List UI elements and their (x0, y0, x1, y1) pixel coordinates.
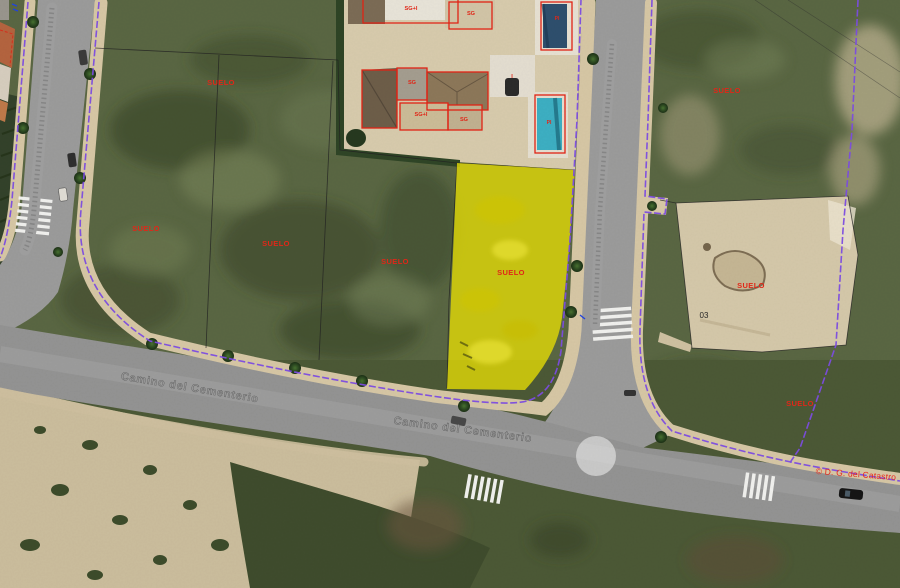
suelo-label-highlighted: SUELO (497, 268, 525, 277)
building-label: SG (408, 80, 416, 86)
tree-icon (658, 103, 668, 113)
pool-label: PI (555, 16, 560, 22)
car (58, 188, 68, 202)
tree-icon (647, 201, 657, 211)
pool-label: PI (547, 120, 552, 126)
tree-icon (53, 247, 63, 257)
suelo-label: SUELO (786, 399, 814, 408)
image-grain (0, 0, 900, 588)
tree-icon (655, 431, 667, 443)
suelo-label: SUELO (262, 239, 290, 248)
tree-icon (565, 306, 577, 318)
building-label: SG (460, 117, 468, 123)
car (624, 390, 636, 396)
suelo-label: SUELO (381, 257, 409, 266)
suelo-label: SUELO (713, 86, 741, 95)
tree-icon (587, 53, 599, 65)
tree-icon (17, 122, 29, 134)
tree-icon (27, 16, 39, 28)
building-label: SG (467, 11, 475, 17)
tree-icon (222, 350, 234, 362)
tree-icon (458, 400, 470, 412)
building-label: SG+I (415, 112, 428, 118)
suelo-label: SUELO (207, 78, 235, 87)
suelo-label: SUELO (132, 224, 160, 233)
tree-icon (571, 260, 583, 272)
suelo-label: SUELO (737, 281, 765, 290)
building-label: SG+I (405, 6, 418, 12)
tree-icon (84, 68, 96, 80)
cadastral-map-viewport: Camino del Cementerio Camino del Cemente… (0, 0, 900, 588)
parcel-number-label: 03 (700, 311, 709, 320)
map-canvas[interactable]: Camino del Cementerio Camino del Cemente… (0, 0, 900, 588)
